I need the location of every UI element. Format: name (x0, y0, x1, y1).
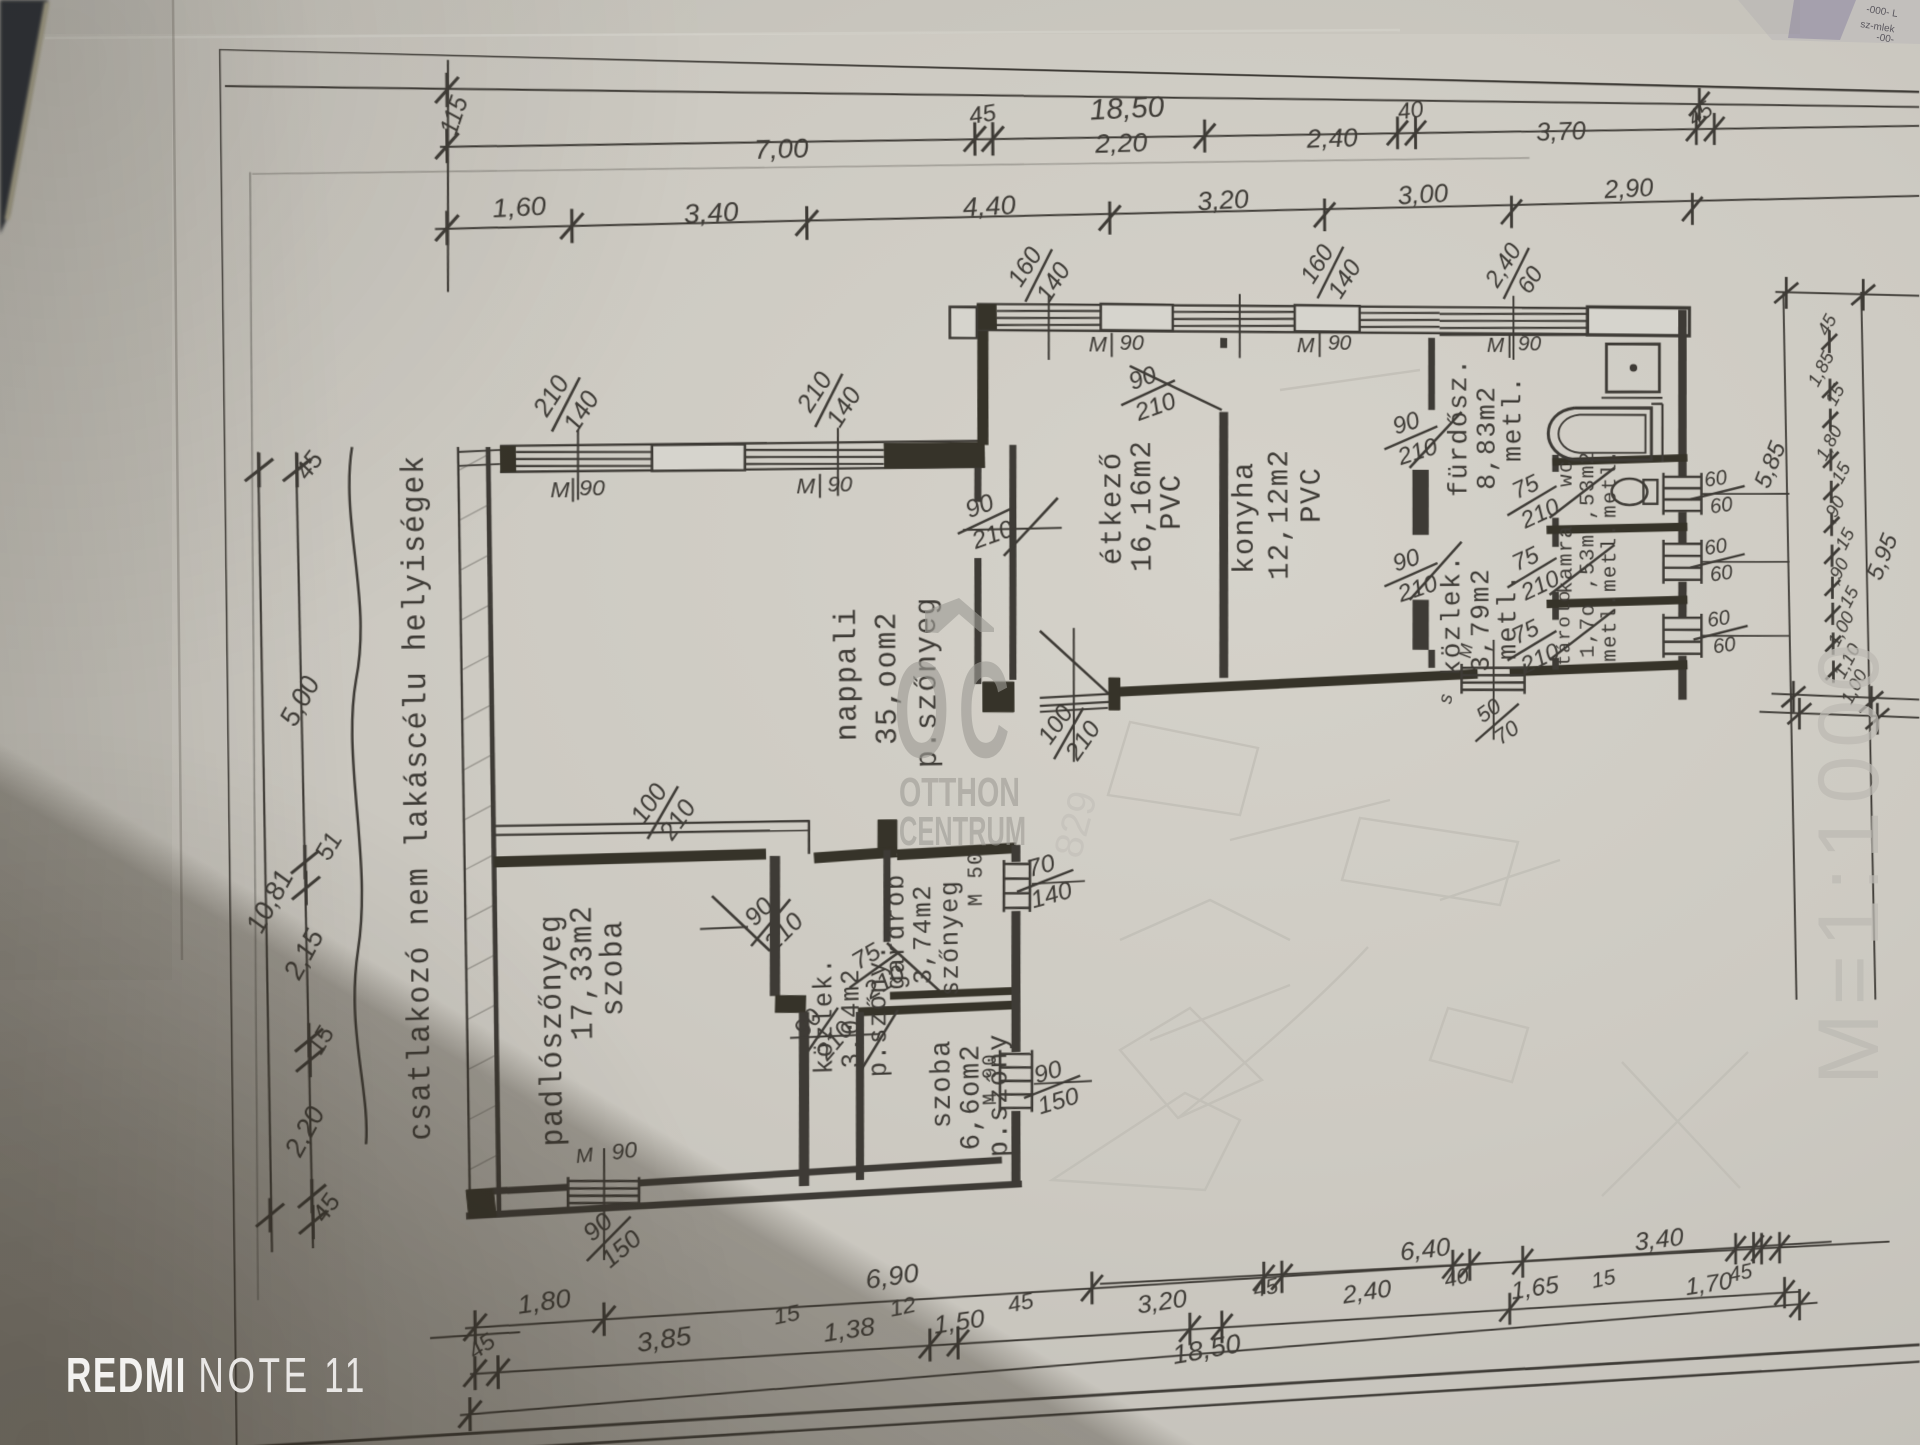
svg-text:REDMINOTE 11: REDMINOTE 11 (66, 1348, 368, 1403)
